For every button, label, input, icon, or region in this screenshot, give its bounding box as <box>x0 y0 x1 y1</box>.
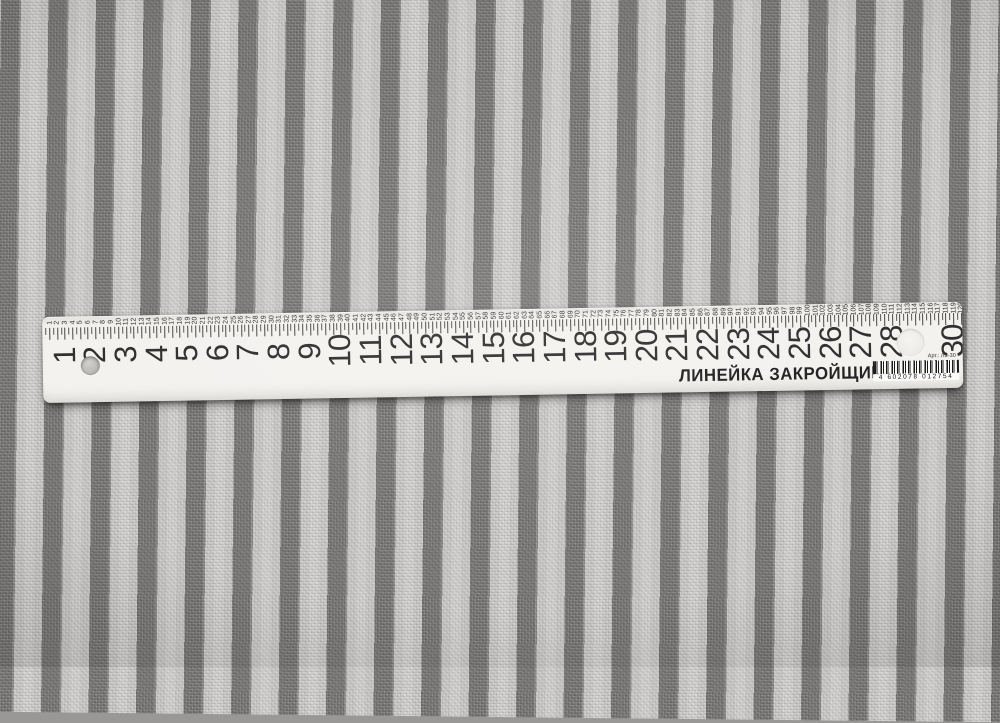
quarter-label: 59 <box>490 312 497 320</box>
quarter-tick <box>180 326 181 338</box>
eighth-tick <box>214 325 215 332</box>
quarter-tick <box>371 323 372 335</box>
quarter-tick <box>631 318 632 330</box>
quarter-tick <box>562 319 563 331</box>
eighth-tick <box>191 326 192 333</box>
eighth-tick <box>903 314 904 321</box>
eighth-tick <box>114 327 115 334</box>
eighth-tick <box>306 324 307 331</box>
eighth-tick <box>153 326 154 333</box>
quarter-tick <box>838 315 839 327</box>
quarter-tick <box>409 322 410 334</box>
quarter-tick <box>111 327 112 339</box>
quarter-tick <box>440 321 441 333</box>
quarter-label: 3 <box>62 321 69 325</box>
eighth-tick <box>298 324 299 331</box>
quarter-label: 117 <box>935 302 942 313</box>
quarter-label: 110 <box>881 303 888 314</box>
eighth-tick <box>719 317 720 324</box>
quarter-tick <box>157 326 158 338</box>
eighth-tick <box>91 327 92 334</box>
quarter-tick <box>363 323 364 335</box>
eighth-tick <box>513 320 514 327</box>
eighth-tick <box>137 326 138 333</box>
quarter-tick <box>892 314 893 326</box>
quarter-label: 74 <box>605 310 612 318</box>
eighth-tick <box>697 317 698 324</box>
eighth-tick <box>436 321 437 328</box>
quarter-tick <box>899 314 900 326</box>
eighth-tick <box>222 325 223 332</box>
cm-label: 7 <box>232 344 263 361</box>
eighth-tick <box>76 327 77 334</box>
quarter-tick <box>501 320 502 332</box>
quarter-tick <box>103 327 104 339</box>
eighth-tick <box>681 317 682 324</box>
quarter-tick <box>861 314 862 326</box>
cm-label: 11 <box>355 335 386 366</box>
quarter-tick <box>65 328 66 340</box>
quarter-tick <box>555 319 556 331</box>
quarter-label: 27 <box>245 316 252 324</box>
quarter-label: 2 <box>54 321 61 325</box>
eighth-tick <box>145 326 146 333</box>
quarter-label: 18 <box>176 317 183 325</box>
quarter-tick <box>915 314 916 326</box>
quarter-tick <box>808 315 809 327</box>
quarter-tick <box>340 323 341 335</box>
eighth-tick <box>536 320 537 327</box>
quarter-tick <box>785 316 786 328</box>
quarter-tick <box>49 328 50 340</box>
eighth-tick <box>888 314 889 321</box>
eighth-tick <box>566 319 567 326</box>
eighth-tick <box>245 325 246 332</box>
eighth-tick <box>727 317 728 324</box>
eighth-tick <box>497 320 498 327</box>
eighth-tick <box>252 324 253 331</box>
eighth-tick <box>99 327 100 334</box>
quarter-label: 116 <box>927 303 934 314</box>
quarter-tick <box>478 321 479 333</box>
eighth-tick <box>896 314 897 321</box>
quarter-tick <box>854 315 855 327</box>
quarter-label: 5 <box>77 320 84 324</box>
eighth-tick <box>199 325 200 332</box>
quarter-tick <box>294 324 295 336</box>
eighth-tick <box>183 326 184 333</box>
quarter-tick <box>608 319 609 331</box>
quarter-label: 24 <box>222 316 229 324</box>
quarter-tick <box>585 319 586 331</box>
quarter-tick <box>884 314 885 326</box>
quarter-label: 91 <box>735 307 742 315</box>
quarter-label: 83 <box>674 309 681 317</box>
quarter-tick <box>509 320 510 332</box>
quarter-tick <box>302 324 303 336</box>
cm-label: 8 <box>263 344 294 361</box>
eighth-tick <box>367 323 368 330</box>
quarter-tick <box>325 323 326 335</box>
quarter-label: 49 <box>414 313 421 321</box>
quarter-tick <box>141 326 142 338</box>
quarter-label: 26 <box>238 316 245 324</box>
quarter-label: 97 <box>781 307 788 315</box>
quarter-label: 62 <box>513 311 520 319</box>
quarter-label: 9 <box>107 320 114 324</box>
quarter-label: 32 <box>284 315 291 323</box>
eighth-tick <box>842 315 843 322</box>
quarter-tick <box>126 327 127 339</box>
eighth-tick <box>834 315 835 322</box>
eighth-tick <box>337 323 338 330</box>
quarter-label: 13 <box>138 317 145 325</box>
quarter-tick <box>471 321 472 333</box>
quarter-label: 76 <box>621 309 628 317</box>
quarter-label: 51 <box>429 313 436 321</box>
cm-label: 23 <box>723 328 755 361</box>
quarter-label: 63 <box>521 311 528 319</box>
eighth-tick <box>176 326 177 333</box>
quarter-label: 44 <box>376 313 383 321</box>
eighth-tick <box>413 322 414 329</box>
quarter-label: 111 <box>889 304 896 315</box>
quarter-tick <box>624 318 625 330</box>
quarter-label: 88 <box>713 308 720 316</box>
eighth-tick <box>811 315 812 322</box>
quarter-label: 54 <box>452 312 459 320</box>
eighth-tick <box>160 326 161 333</box>
quarter-tick <box>685 317 686 329</box>
eighth-tick <box>130 327 131 334</box>
quarter-tick <box>95 327 96 339</box>
eighth-tick <box>612 319 613 326</box>
eighth-tick <box>758 316 759 323</box>
quarter-label: 19 <box>184 317 191 325</box>
eighth-tick <box>628 318 629 325</box>
cm-label: 14 <box>447 333 479 366</box>
quarter-label: 50 <box>421 313 428 321</box>
eighth-tick <box>390 322 391 329</box>
cm-label: 10 <box>324 335 356 368</box>
quarter-tick <box>777 316 778 328</box>
quarter-tick <box>455 321 456 333</box>
eighth-tick <box>582 319 583 326</box>
tailor-ruler: 1234567891011121314151617181920212223242… <box>42 302 963 403</box>
eighth-tick <box>467 321 468 328</box>
eighth-tick <box>360 323 361 330</box>
quarter-label: 31 <box>276 315 283 323</box>
eighth-tick <box>122 327 123 334</box>
eighth-tick <box>559 319 560 326</box>
quarter-label: 72 <box>590 310 597 318</box>
quarter-label: 84 <box>682 308 689 316</box>
eighth-tick <box>804 315 805 322</box>
quarter-label: 20 <box>192 317 199 325</box>
eighth-tick <box>61 328 62 335</box>
eighth-tick <box>934 313 935 320</box>
eighth-tick <box>658 318 659 325</box>
cm-label: 16 <box>508 332 540 365</box>
quarter-label: 67 <box>552 311 559 319</box>
eighth-tick <box>53 328 54 335</box>
eighth-tick <box>880 314 881 321</box>
ruler-scale: 1234567891011121314151617181920212223242… <box>42 302 963 403</box>
quarter-tick <box>639 318 640 330</box>
eighth-tick <box>505 320 506 327</box>
quarter-label: 81 <box>659 309 666 317</box>
quarter-label: 94 <box>758 307 765 315</box>
quarter-label: 30 <box>268 315 275 323</box>
quarter-tick <box>310 324 311 336</box>
eighth-tick <box>421 322 422 329</box>
eighth-tick <box>750 316 751 323</box>
quarter-tick <box>540 320 541 332</box>
quarter-tick <box>723 317 724 329</box>
quarter-label: 86 <box>697 308 704 316</box>
quarter-tick <box>616 318 617 330</box>
quarter-tick <box>225 325 226 337</box>
eighth-tick <box>819 315 820 322</box>
quarter-tick <box>356 323 357 335</box>
eighth-tick <box>459 321 460 328</box>
quarter-tick <box>601 319 602 331</box>
quarter-label: 73 <box>598 310 605 318</box>
quarter-label: 77 <box>628 309 635 317</box>
quarter-label: 11 <box>123 318 130 325</box>
eighth-tick <box>428 322 429 329</box>
eighth-tick <box>949 313 950 320</box>
eighth-tick <box>666 318 667 325</box>
eighth-tick <box>528 320 529 327</box>
quarter-tick <box>769 316 770 328</box>
cm-label: 26 <box>814 326 846 359</box>
quarter-label: 53 <box>444 312 451 320</box>
quarter-label: 28 <box>253 315 260 323</box>
quarter-tick <box>877 314 878 326</box>
quarter-tick <box>930 313 931 325</box>
quarter-tick <box>831 315 832 327</box>
quarter-tick <box>762 316 763 328</box>
quarter-label: 33 <box>291 315 298 323</box>
cm-label: 4 <box>141 346 172 363</box>
eighth-tick <box>520 320 521 327</box>
quarter-tick <box>72 327 73 339</box>
quarter-tick <box>945 313 946 325</box>
quarter-tick <box>241 325 242 337</box>
quarter-tick <box>425 322 426 334</box>
quarter-tick <box>739 316 740 328</box>
eighth-tick <box>375 322 376 329</box>
cm-label: 5 <box>171 345 202 362</box>
eighth-tick <box>765 316 766 323</box>
quarter-label: 29 <box>261 315 268 323</box>
eighth-tick <box>605 319 606 326</box>
quarter-label: 41 <box>353 314 360 322</box>
eighth-tick <box>942 313 943 320</box>
quarter-tick <box>486 321 487 333</box>
barcode-block: Арт.: ЛЗ-30 4 602078 012754 <box>873 353 959 381</box>
quarter-label: 39 <box>337 314 344 322</box>
quarter-tick <box>517 320 518 332</box>
quarter-label: 58 <box>483 312 490 320</box>
eighth-tick <box>735 316 736 323</box>
eighth-tick <box>551 320 552 327</box>
cm-label: 6 <box>202 345 233 362</box>
eighth-tick <box>268 324 269 331</box>
eighth-tick <box>873 314 874 321</box>
quarter-label: 21 <box>199 316 206 324</box>
eighth-tick <box>597 319 598 326</box>
quarter-label: 15 <box>153 317 160 325</box>
quarter-tick <box>570 319 571 331</box>
quarter-label: 70 <box>575 310 582 318</box>
quarter-tick <box>88 327 89 339</box>
quarter-tick <box>716 317 717 329</box>
eighth-tick <box>796 315 797 322</box>
eighth-tick <box>474 321 475 328</box>
quarter-label: 4 <box>69 320 76 324</box>
quarter-label: 47 <box>399 313 406 321</box>
quarter-label: 37 <box>322 314 329 322</box>
cm-label: 24 <box>753 327 785 360</box>
quarter-tick <box>432 322 433 334</box>
quarter-label: 35 <box>307 315 314 323</box>
quarter-label: 99 <box>797 306 804 314</box>
quarter-tick <box>134 326 135 338</box>
eighth-tick <box>620 318 621 325</box>
quarter-label: 87 <box>705 308 712 316</box>
quarter-tick <box>248 325 249 337</box>
eighth-tick <box>651 318 652 325</box>
eighth-tick <box>84 327 85 334</box>
quarter-tick <box>494 320 495 332</box>
cm-label: 9 <box>294 343 325 360</box>
quarter-label: 22 <box>207 316 214 324</box>
quarter-tick <box>463 321 464 333</box>
quarter-tick <box>379 322 380 334</box>
eighth-tick <box>689 317 690 324</box>
eighth-tick <box>46 328 47 335</box>
cm-label: 18 <box>569 331 601 364</box>
eighth-tick <box>206 325 207 332</box>
quarter-label: 52 <box>437 312 444 320</box>
quarter-tick <box>348 323 349 335</box>
eighth-tick <box>321 323 322 330</box>
quarter-label: 92 <box>743 307 750 315</box>
quarter-label: 60 <box>498 311 505 319</box>
quarter-tick <box>57 328 58 340</box>
quarter-tick <box>203 325 204 337</box>
quarter-tick <box>938 313 939 325</box>
quarter-tick <box>386 322 387 334</box>
quarter-tick <box>754 316 755 328</box>
quarter-tick <box>823 315 824 327</box>
eighth-tick <box>482 321 483 328</box>
quarter-tick <box>524 320 525 332</box>
quarter-tick <box>547 320 548 332</box>
quarter-tick <box>195 325 196 337</box>
eighth-tick <box>589 319 590 326</box>
quarter-tick <box>654 318 655 330</box>
cm-label: 13 <box>416 333 448 366</box>
quarter-label: 6 <box>85 320 92 324</box>
quarter-label: 46 <box>391 313 398 321</box>
quarter-tick <box>233 325 234 337</box>
quarter-label: 66 <box>544 311 551 319</box>
eighth-tick <box>405 322 406 329</box>
quarter-label: 68 <box>559 310 566 318</box>
cm-label: 17 <box>539 331 571 364</box>
quarter-tick <box>869 314 870 326</box>
eighth-tick <box>635 318 636 325</box>
ruler-brand-text: ЛИНЕЙКА ЗАКРОЙЩИКА <box>679 364 895 385</box>
quarter-label: 57 <box>475 312 482 320</box>
quarter-tick <box>670 318 671 330</box>
quarter-tick <box>578 319 579 331</box>
cm-label: 15 <box>477 332 509 365</box>
eighth-tick <box>444 321 445 328</box>
eighth-tick <box>229 325 230 332</box>
quarter-label: 69 <box>567 310 574 318</box>
eighth-tick <box>919 313 920 320</box>
eighth-tick <box>490 321 491 328</box>
quarter-tick <box>677 317 678 329</box>
barcode-digits: 4 602078 012754 <box>873 373 959 381</box>
quarter-label: 118 <box>942 302 949 313</box>
eighth-tick <box>788 316 789 323</box>
eighth-tick <box>275 324 276 331</box>
eighth-tick <box>344 323 345 330</box>
quarter-tick <box>961 313 962 325</box>
quarter-label: 65 <box>536 311 543 319</box>
quarter-label: 56 <box>467 312 474 320</box>
quarter-label: 43 <box>368 314 375 322</box>
quarter-label: 38 <box>330 314 337 322</box>
quarter-tick <box>417 322 418 334</box>
quarter-tick <box>394 322 395 334</box>
eighth-tick <box>260 324 261 331</box>
quarter-label: 8 <box>100 320 107 324</box>
quarter-label: 93 <box>751 307 758 315</box>
quarter-tick <box>800 315 801 327</box>
quarter-tick <box>402 322 403 334</box>
quarter-tick <box>922 313 923 325</box>
quarter-tick <box>80 327 81 339</box>
quarter-label: 95 <box>766 307 773 315</box>
quarter-label: 1 <box>46 321 53 325</box>
quarter-label: 78 <box>636 309 643 317</box>
eighth-tick <box>382 322 383 329</box>
cm-label: 22 <box>692 328 724 361</box>
quarter-label: 42 <box>360 314 367 322</box>
quarter-label: 55 <box>460 312 467 320</box>
eighth-tick <box>107 327 108 334</box>
eighth-tick <box>712 317 713 324</box>
cm-label: 12 <box>386 334 418 367</box>
eighth-tick <box>329 323 330 330</box>
quarter-label: 79 <box>644 309 651 317</box>
eighth-tick <box>352 323 353 330</box>
eighth-tick <box>857 314 858 321</box>
quarter-label: 75 <box>613 310 620 318</box>
quarter-tick <box>172 326 173 338</box>
eighth-tick <box>574 319 575 326</box>
quarter-tick <box>218 325 219 337</box>
cm-label: 3 <box>110 346 141 363</box>
quarter-tick <box>187 326 188 338</box>
eighth-tick <box>291 324 292 331</box>
